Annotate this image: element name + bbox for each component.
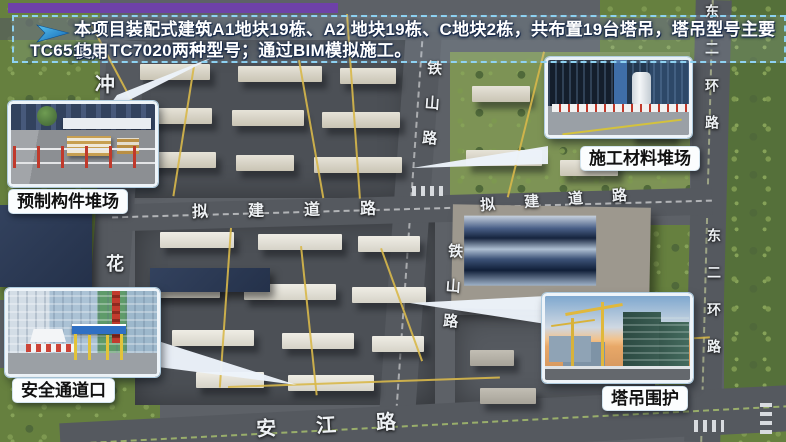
- building-block: [472, 86, 530, 102]
- crosswalk: [412, 186, 446, 196]
- building-block: [282, 333, 354, 349]
- road-label-left-char: 花: [106, 250, 124, 276]
- building-block: [352, 287, 426, 303]
- highrise-towers: [150, 268, 270, 292]
- photo-barrier: [26, 344, 76, 352]
- photo-fence-row: [552, 104, 690, 112]
- photo-hoist-tower: [112, 291, 120, 343]
- building-block: [238, 66, 322, 82]
- crane-enclosure-photo: [542, 293, 693, 383]
- photo-blue-panel: [614, 60, 627, 104]
- precast-yard-label: 预制构件堆场: [8, 189, 128, 214]
- building-block: [236, 155, 294, 171]
- building-block: [480, 388, 536, 404]
- photo-canopy-leg: [120, 334, 123, 360]
- photo-glass-grid: [623, 312, 689, 368]
- top-purple-bar: [8, 3, 338, 13]
- map-forest-right-strip: [724, 0, 786, 442]
- material-yard-photo: [545, 57, 692, 138]
- crosswalk: [760, 398, 772, 434]
- building-block: [466, 150, 542, 166]
- road-label-east-ring-lower: 东二环路: [704, 228, 724, 376]
- photo-canopy-leg: [88, 335, 91, 360]
- material-yard-label: 施工材料堆场: [580, 146, 700, 171]
- photo-fence-posts: [13, 146, 157, 168]
- building-block: [322, 112, 400, 128]
- photo-silo: [632, 72, 651, 104]
- photo-crane-mast: [571, 318, 574, 368]
- photo-distant-buildings: [549, 336, 591, 362]
- building-block: [140, 64, 210, 80]
- photo-fence-line: [545, 366, 690, 369]
- photo-crane-mast: [601, 302, 604, 368]
- building-block: [470, 350, 514, 366]
- precast-yard-photo: [8, 101, 158, 187]
- safety-passage-label: 安全通道口: [12, 378, 115, 403]
- building-block: [150, 108, 212, 124]
- crane-enclosure-label: 塔吊围护: [602, 386, 688, 411]
- photo-canopy-leg: [106, 335, 109, 360]
- building-block: [358, 236, 420, 252]
- road-label-proposed-left: 拟建道路: [192, 194, 416, 222]
- project-description-banner: 本项目装配式建筑A1地块19栋、A2 地块19栋、C地块2栋，共布置19台塔吊，…: [12, 15, 786, 63]
- photo-ground: [8, 353, 157, 377]
- building-block: [160, 232, 234, 248]
- safety-passage-photo: [5, 288, 160, 377]
- road-label-upper-left-char: 冲: [95, 68, 115, 97]
- site-plan-slide: 铁山路 铁山路 东二环路 东二环路 拟建道路 拟建道路 花 冲 安江路 预制构件…: [0, 0, 786, 442]
- building-block: [172, 330, 254, 346]
- photo-tree: [37, 106, 57, 126]
- photo-tent: [30, 329, 66, 342]
- barrel-roof: [464, 216, 596, 286]
- highrise-towers: [0, 205, 92, 287]
- crosswalk: [694, 420, 724, 432]
- building-block: [232, 110, 304, 126]
- photo-canopy: [63, 118, 151, 129]
- building-block: [340, 68, 396, 84]
- photo-canopy-leg: [74, 334, 77, 360]
- banner-line-2: TC6515、TC7020两种型号；通过BIM模拟施工。: [30, 40, 412, 62]
- photo-canopy-roof: [72, 324, 126, 334]
